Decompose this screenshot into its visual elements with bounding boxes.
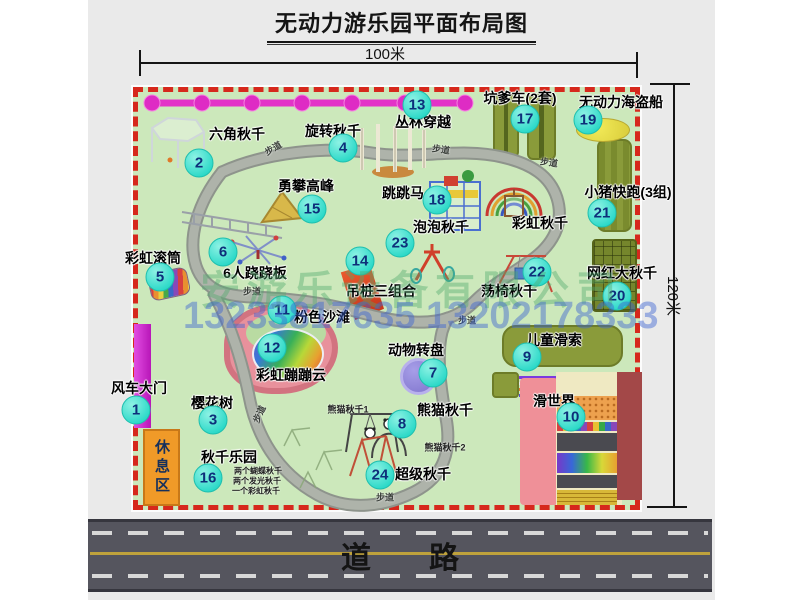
height-dimension-label: 120米: [663, 276, 684, 316]
road-label: 道路: [283, 533, 517, 577]
right-dimension-tick-bottom: [647, 506, 687, 508]
park-plan-page: 无动力游乐园平面布局图 100米 120米: [0, 0, 800, 600]
park-map-area: [133, 87, 640, 510]
top-dimension-tick-left: [139, 50, 141, 76]
page-title: 无动力游乐园平面布局图: [267, 6, 536, 43]
title-wrap: 无动力游乐园平面布局图: [88, 6, 715, 43]
width-dimension-label: 100米: [365, 43, 405, 64]
road-label-wrap: 道路: [88, 533, 712, 577]
right-dimension-tick-top: [650, 83, 690, 85]
top-dimension-tick-right: [636, 52, 638, 78]
